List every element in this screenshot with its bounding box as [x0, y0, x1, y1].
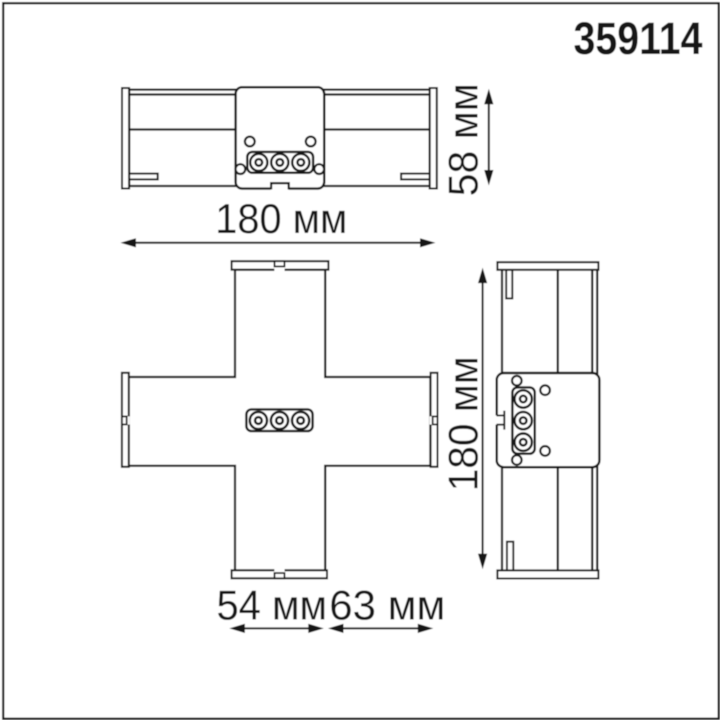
- svg-text:58 мм: 58 мм: [439, 83, 486, 196]
- svg-text:359114: 359114: [574, 13, 704, 64]
- svg-text:54 мм: 54 мм: [216, 581, 327, 628]
- svg-text:63 мм: 63 мм: [329, 581, 445, 628]
- svg-text:180 мм: 180 мм: [215, 195, 347, 242]
- svg-text:180 мм: 180 мм: [440, 356, 487, 491]
